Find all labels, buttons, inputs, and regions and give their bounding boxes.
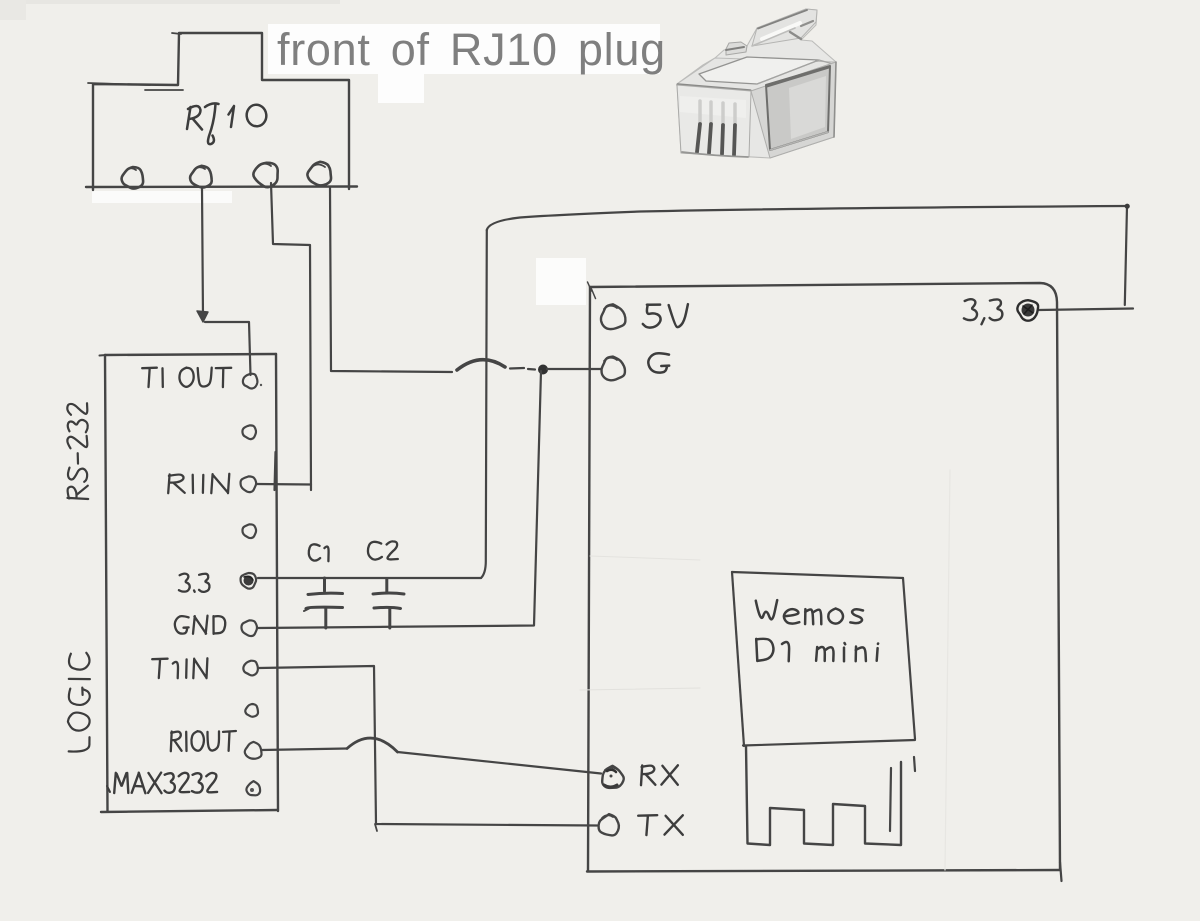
svg-text:front of RJ10 plug: front of RJ10 plug [277, 24, 666, 75]
